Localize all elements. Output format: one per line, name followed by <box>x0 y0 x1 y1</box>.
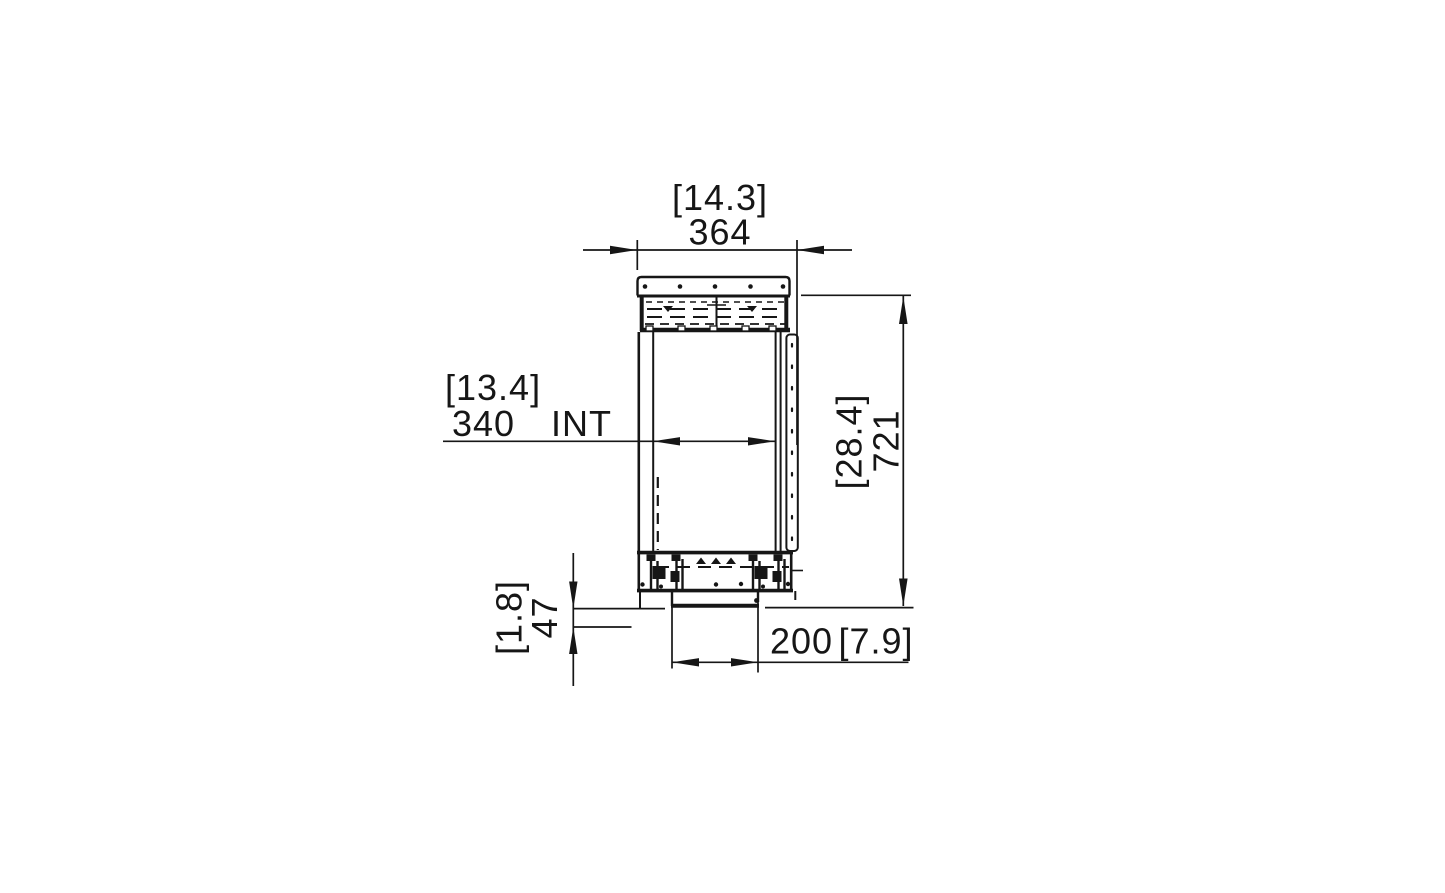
arrowhead <box>610 246 637 254</box>
dimension-internal-width: [13.4] 340 INT <box>443 367 775 446</box>
tray-tab <box>726 558 736 565</box>
screw-hole <box>713 284 718 289</box>
arrowhead <box>797 246 824 254</box>
fireplace-side-elevation-drawing: [14.3] 364 [13.4] 340 INT [28.4] 721 [1.… <box>0 0 1445 893</box>
dimension-base-width: 200 [7.9] <box>672 602 914 673</box>
top-mounting-flange <box>637 277 790 296</box>
dim-base-width-inches: [7.9] <box>839 621 914 662</box>
arrowhead <box>569 627 577 654</box>
screw-hole <box>781 284 786 289</box>
arrowhead <box>899 579 908 607</box>
rivet-dot <box>739 582 743 586</box>
arrowhead <box>569 582 577 609</box>
rivet-dot <box>640 582 644 586</box>
dim-internal-width-suffix: INT <box>551 403 612 444</box>
arrowhead <box>899 297 908 325</box>
screw-hole <box>678 284 683 289</box>
tray-tab <box>696 558 706 565</box>
dim-base-height-mm: 47 <box>524 596 565 638</box>
dim-internal-width-inches: [13.4] <box>445 367 541 408</box>
arrowhead <box>731 658 758 666</box>
dim-base-width-mm: 200 <box>770 621 833 662</box>
arrowhead <box>748 437 775 445</box>
screw-hole <box>643 284 648 289</box>
screw-hole <box>748 284 753 289</box>
top-chassis-section <box>640 296 790 331</box>
dim-overall-height-mm: 721 <box>866 409 907 472</box>
base-tray <box>637 552 793 591</box>
right-foot-assembly <box>749 555 785 591</box>
drawing-canvas: [14.3] 364 [13.4] 340 INT [28.4] 721 [1.… <box>0 0 1445 893</box>
arrowhead <box>672 658 699 666</box>
rivet-dot <box>714 582 718 586</box>
arrowhead <box>653 437 680 445</box>
dim-overall-height-inches: [28.4] <box>829 393 870 489</box>
rivet-dot <box>786 582 790 586</box>
tray-tab <box>711 558 721 565</box>
dim-overall-width-mm: 364 <box>688 212 751 253</box>
glass-door-panel <box>786 335 797 552</box>
dim-internal-width-mm: 340 <box>452 403 515 444</box>
left-foot-assembly <box>647 555 683 591</box>
